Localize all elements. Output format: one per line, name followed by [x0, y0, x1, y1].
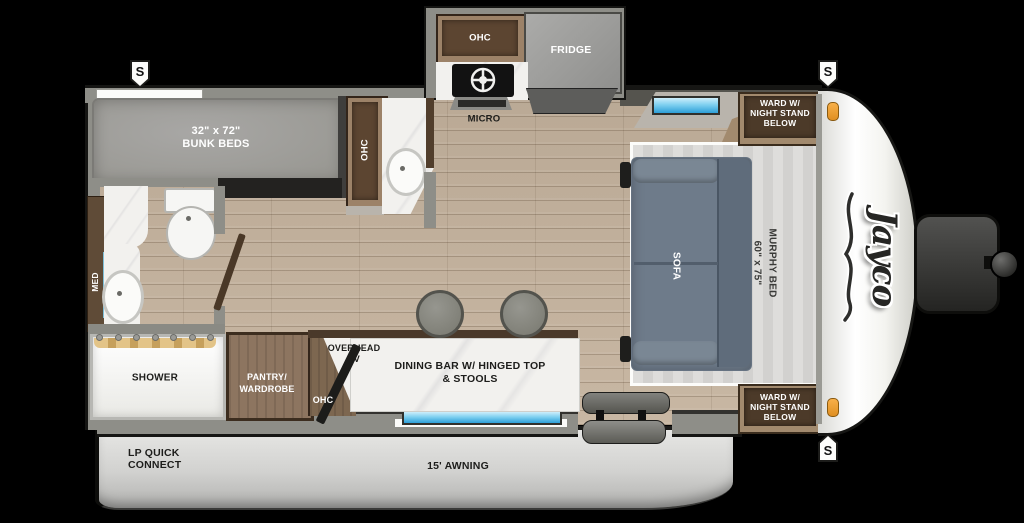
shower-top-wall: [88, 324, 225, 334]
toilet-flush: [186, 216, 191, 221]
jayco-bird-icon: [836, 190, 864, 322]
bunk-size-label: 32" x 72": [192, 125, 241, 137]
wardrobe-bottom-label-line2: NIGHT STAND: [750, 402, 810, 412]
bunk-footboard: [218, 178, 342, 198]
sofa-armrest-top: [633, 159, 719, 183]
shower-curtain-hooks: [96, 334, 214, 340]
kitchen-sink: [386, 148, 426, 196]
medicine-cabinet-label: MED: [90, 272, 100, 292]
kitchen-sink-drain: [400, 166, 405, 171]
microwave-label: MICRO: [468, 114, 501, 125]
fridge-label: FRIDGE: [551, 44, 592, 56]
brand-logo: Jayco: [864, 210, 904, 306]
sofa-foot: [620, 336, 631, 362]
stab-jack-marker: S: [818, 434, 838, 462]
bathroom-sink: [102, 270, 144, 324]
rv-floorplan: LP QUICK CONNECT 15' AWNING OHC FRIDGE M…: [0, 0, 1024, 523]
shower-label: SHOWER: [132, 373, 178, 384]
kitchen-wall-stub: [424, 172, 436, 228]
stool: [416, 290, 464, 338]
wardrobe-bottom-label-line3: BELOW: [764, 412, 797, 422]
wardrobe-bottom-label-line1: WARD W/: [760, 392, 800, 402]
corner-ohc-label: OHC: [313, 395, 334, 405]
range-hood-vent: [458, 100, 506, 107]
living-window: [652, 96, 720, 115]
burner-icon: [468, 65, 498, 95]
wardrobe-top-label-line3: BELOW: [764, 118, 797, 128]
sofa-backrest: [717, 159, 750, 367]
clearance-light: [827, 398, 839, 417]
sofa-label: SOFA: [671, 252, 682, 280]
entry-step-outer: [582, 420, 666, 444]
wall-bottom-right: [672, 410, 742, 437]
overhead-tv-label-line2: TV: [348, 354, 360, 364]
sofa-foot: [620, 162, 631, 188]
bunk-ohc-shelf: [346, 206, 384, 215]
sofa-armrest-bottom: [633, 341, 719, 365]
dining-label-line1: DINING BAR W/ HINGED TOP: [394, 360, 545, 372]
overhead-tv-label-line1: OVERHEAD: [328, 343, 381, 353]
dining-window: [402, 410, 562, 425]
kitchen-counter-edge: [426, 98, 434, 168]
bunk-ohc-label: OHC: [360, 139, 371, 161]
toilet-bowl: [166, 206, 216, 260]
clearance-light: [827, 102, 839, 121]
hitch-ball: [990, 250, 1019, 279]
lp-quick-connect-label: LP QUICK CONNECT: [128, 447, 181, 471]
stab-jack-marker: S: [130, 60, 150, 88]
bathroom-wall-upper: [214, 186, 225, 234]
front-cap-wall: [816, 94, 822, 424]
awning-label: 15' AWNING: [427, 460, 489, 472]
bunk-name-label: BUNK BEDS: [182, 138, 249, 150]
stab-jack-marker: S: [818, 60, 838, 88]
pantry-label-line2: WARDROBE: [239, 384, 294, 394]
bathroom-counter-upper: [104, 186, 148, 248]
kitchen-ohc-label: OHC: [469, 33, 491, 44]
bathroom-sink-drain: [117, 291, 122, 296]
murphy-size-label: 60" x 75": [752, 241, 763, 286]
fridge-door-swing: [526, 88, 618, 114]
murphy-name-label: MURPHY BED: [767, 228, 778, 297]
wardrobe-top-label-line1: WARD W/: [760, 98, 800, 108]
pantry-label-line1: PANTRY/: [247, 372, 287, 382]
dining-label-line2: & STOOLS: [442, 373, 497, 385]
wardrobe-top-label-line2: NIGHT STAND: [750, 108, 810, 118]
stool: [500, 290, 548, 338]
